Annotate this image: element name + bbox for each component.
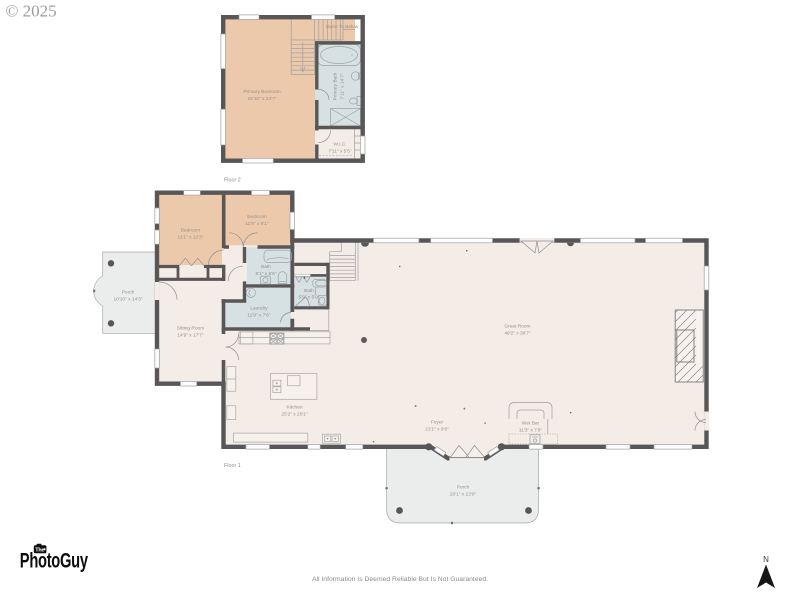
svg-text:5'9" x 5'9": 5'9" x 5'9" [299, 295, 320, 301]
svg-text:Open To Below: Open To Below [326, 24, 359, 30]
svg-text:© 2025: © 2025 [6, 2, 57, 21]
svg-text:Porch: Porch [457, 485, 470, 491]
svg-text:14'9" x 17'7": 14'9" x 17'7" [177, 333, 204, 339]
svg-text:Great Room: Great Room [504, 324, 530, 330]
svg-text:21'1" x 9'6": 21'1" x 9'6" [425, 427, 449, 433]
svg-text:25'2" x 20'1": 25'2" x 20'1" [281, 412, 308, 418]
svg-text:20'1" x 13'0": 20'1" x 13'0" [450, 492, 477, 498]
svg-text:Floor 2: Floor 2 [224, 178, 241, 184]
svg-text:Bath: Bath [261, 264, 271, 270]
svg-text:Sitting Room: Sitting Room [177, 326, 204, 332]
svg-text:7'11" x 14'7": 7'11" x 14'7" [340, 73, 346, 99]
svg-text:10'10" x 14'3": 10'10" x 14'3" [114, 297, 143, 303]
svg-text:Bedroom: Bedroom [181, 228, 200, 234]
svg-text:11'8" x 9'1": 11'8" x 9'1" [245, 221, 269, 227]
svg-text:The: The [35, 548, 44, 554]
svg-text:Porch: Porch [122, 290, 135, 296]
svg-text:Primary Bath: Primary Bath [333, 72, 339, 100]
svg-text:11'1" x 12'3": 11'1" x 12'3" [178, 235, 204, 241]
svg-text:W.I.C.: W.I.C. [333, 142, 346, 148]
svg-text:15'10" x 24'7": 15'10" x 24'7" [248, 96, 277, 102]
svg-text:Kitchen: Kitchen [287, 405, 303, 411]
svg-text:Wet Bar: Wet Bar [522, 421, 540, 427]
svg-text:Foyer: Foyer [431, 420, 444, 426]
svg-text:Laundry: Laundry [250, 306, 268, 312]
svg-text:49'2" x 39'7": 49'2" x 39'7" [504, 331, 531, 337]
svg-text:All Information Is Deemed Reli: All Information Is Deemed Reliable But I… [312, 576, 488, 583]
svg-text:Bedroom: Bedroom [247, 214, 266, 220]
svg-text:11'3" x 7'6": 11'3" x 7'6" [519, 428, 543, 434]
svg-text:8'1" x 6'5": 8'1" x 6'5" [256, 271, 277, 277]
svg-text:Bath: Bath [304, 288, 314, 294]
svg-text:11'9" x 7'6": 11'9" x 7'6" [247, 313, 271, 319]
svg-text:Primary Bedroom: Primary Bedroom [243, 89, 280, 95]
svg-text:7'11" x 5'5": 7'11" x 5'5" [328, 149, 352, 155]
svg-text:N: N [763, 555, 769, 564]
svg-text:Floor 1: Floor 1 [224, 463, 241, 469]
svg-text:PhotoGuy: PhotoGuy [20, 549, 88, 572]
